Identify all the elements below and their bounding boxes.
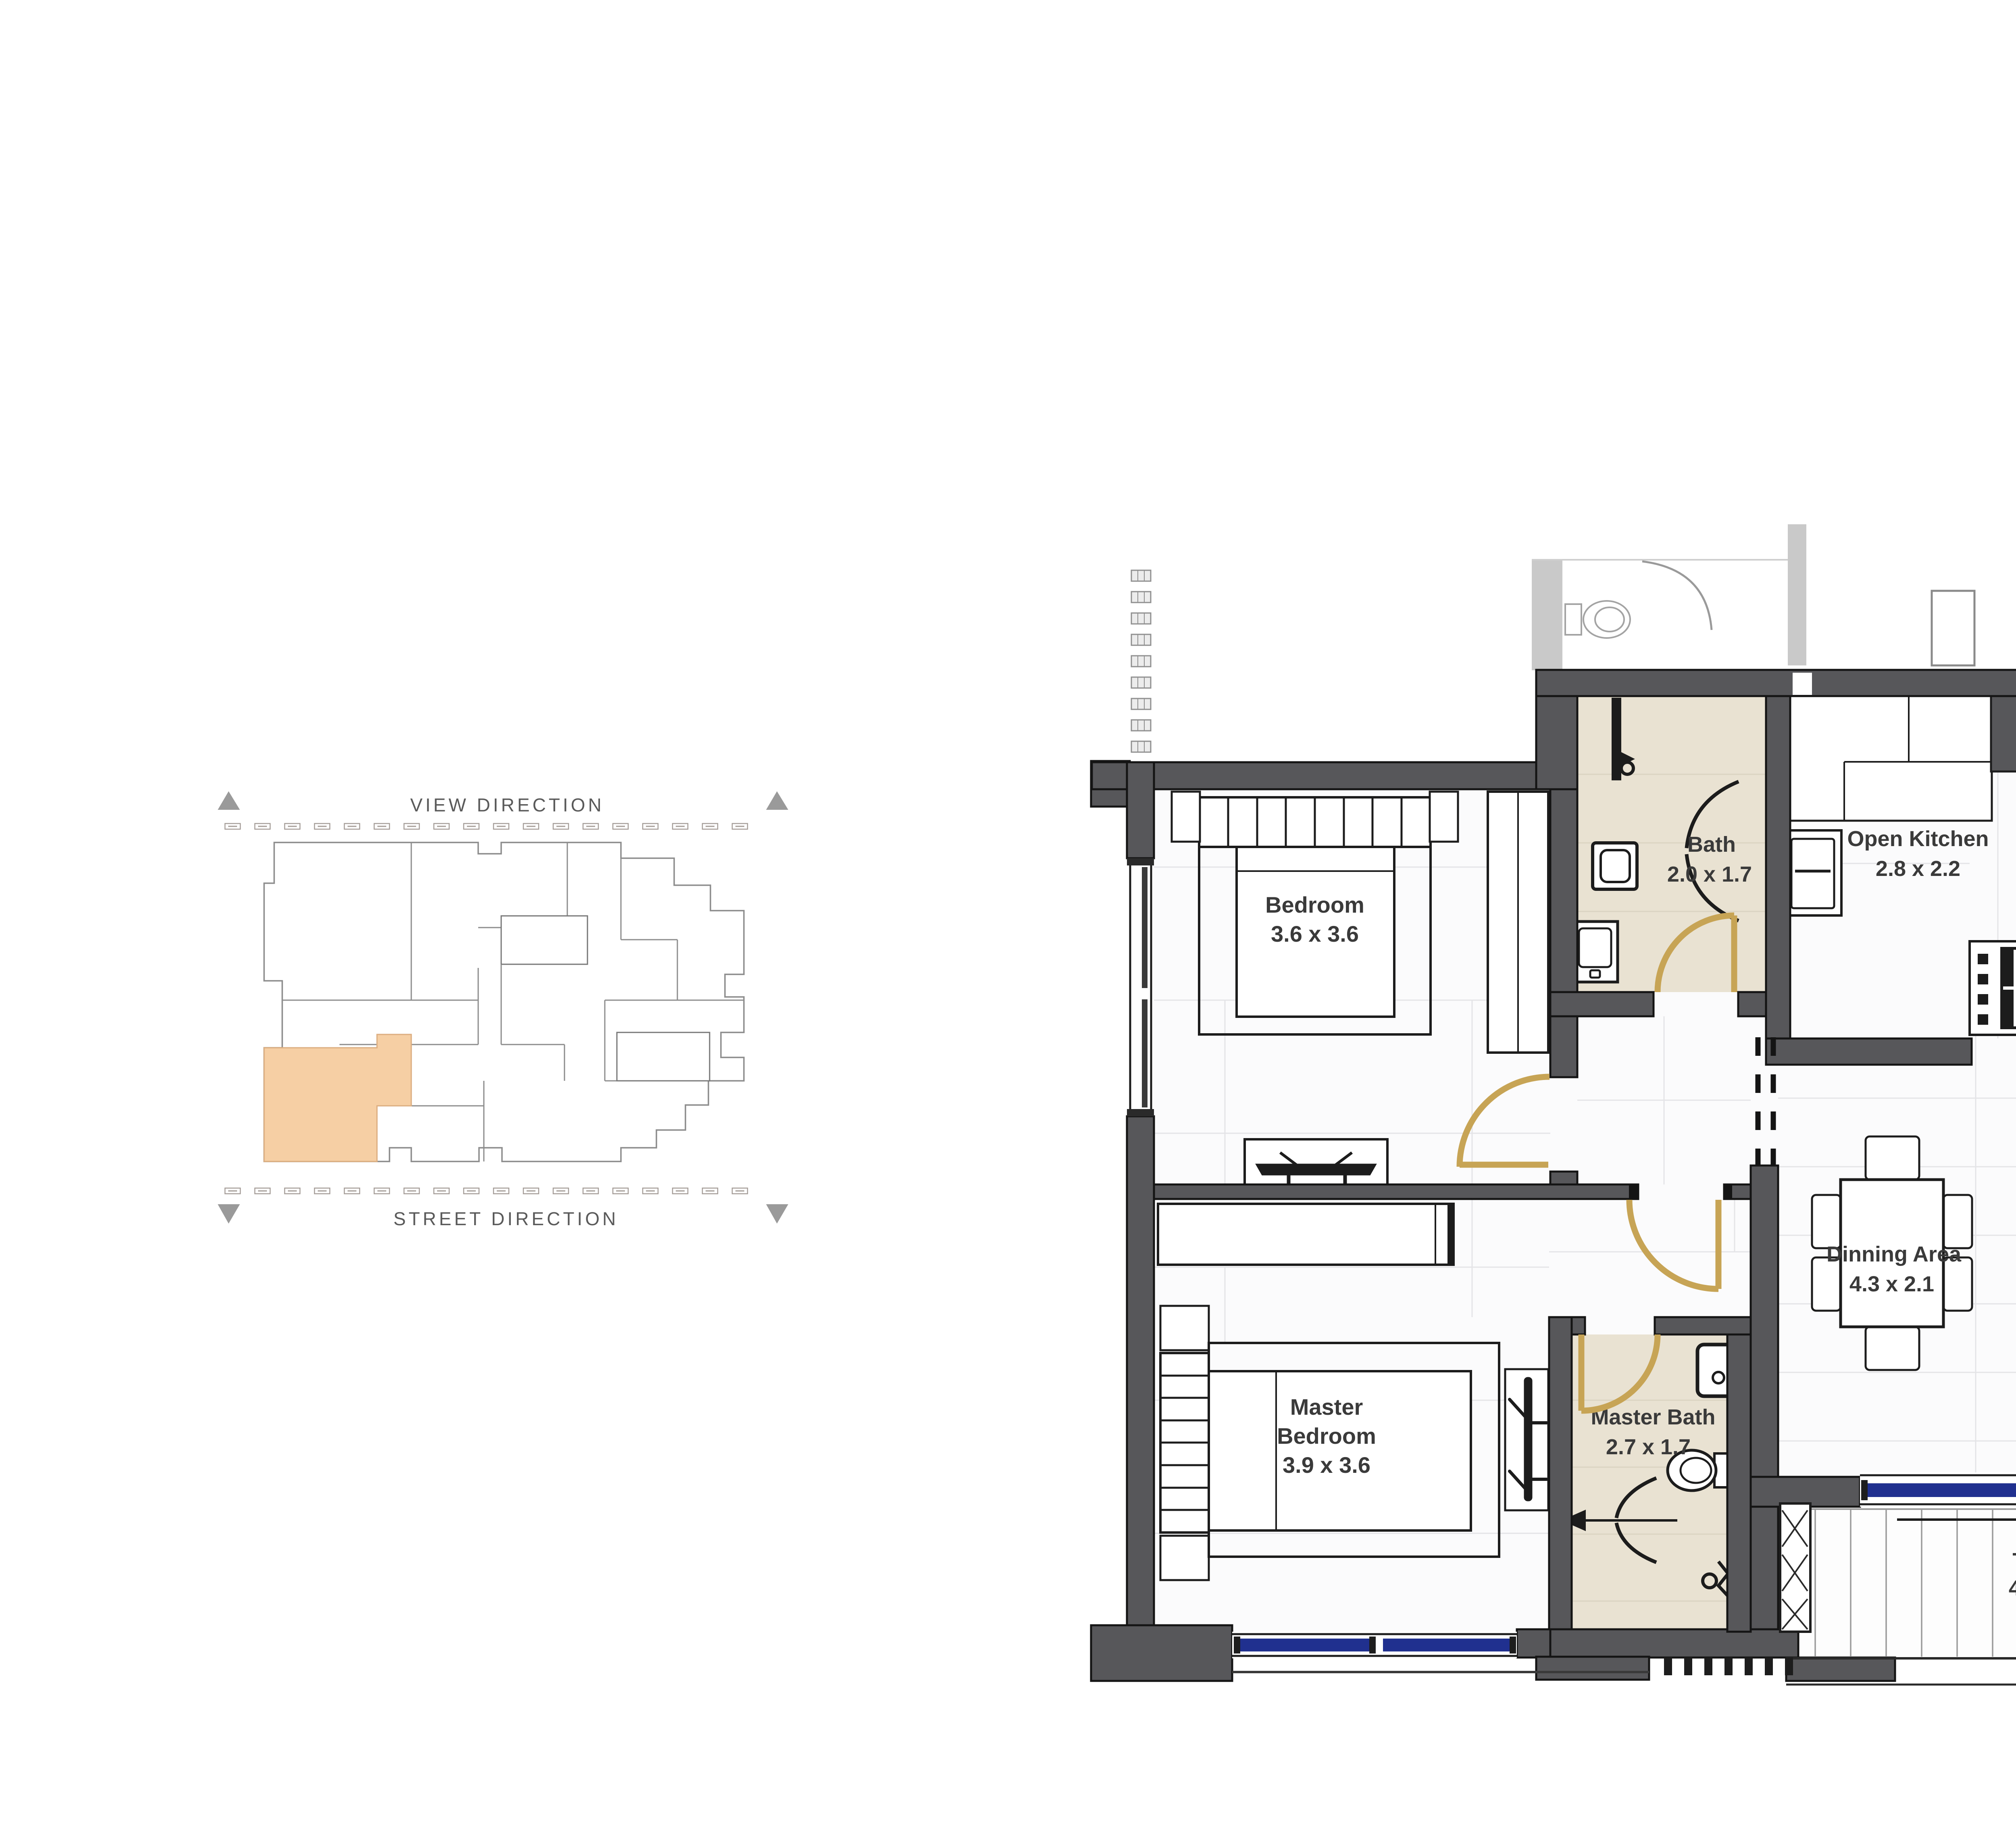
svg-text:VIEW DIRECTION: VIEW DIRECTION [410,794,604,815]
svg-text:3.9 x 3.6: 3.9 x 3.6 [1283,1452,1370,1478]
svg-text:Open Kitchen: Open Kitchen [1847,827,1989,851]
svg-text:Bedroom: Bedroom [1277,1423,1376,1449]
svg-text:STREET DIRECTION: STREET DIRECTION [394,1208,619,1229]
svg-text:Dinning Area: Dinning Area [1826,1242,1962,1266]
svg-text:Bath: Bath [1687,832,1736,857]
svg-text:Master Bath: Master Bath [1591,1405,1715,1429]
svg-text:4.3 x 1.4: 4.3 x 1.4 [2009,1576,2016,1600]
svg-text:2.8 x 2.2: 2.8 x 2.2 [1876,857,1960,881]
svg-text:Bedroom: Bedroom [1265,892,1364,917]
svg-text:2.7 x 1.7: 2.7 x 1.7 [1606,1435,1691,1459]
svg-text:4.3 x 2.1: 4.3 x 2.1 [1849,1272,1934,1296]
svg-text:3.6 x 3.6: 3.6 x 3.6 [1271,921,1359,947]
svg-text:Terrace: Terrace [2012,1549,2016,1573]
svg-text:Master: Master [1290,1394,1363,1420]
svg-text:2.0 x 1.7: 2.0 x 1.7 [1667,862,1752,886]
